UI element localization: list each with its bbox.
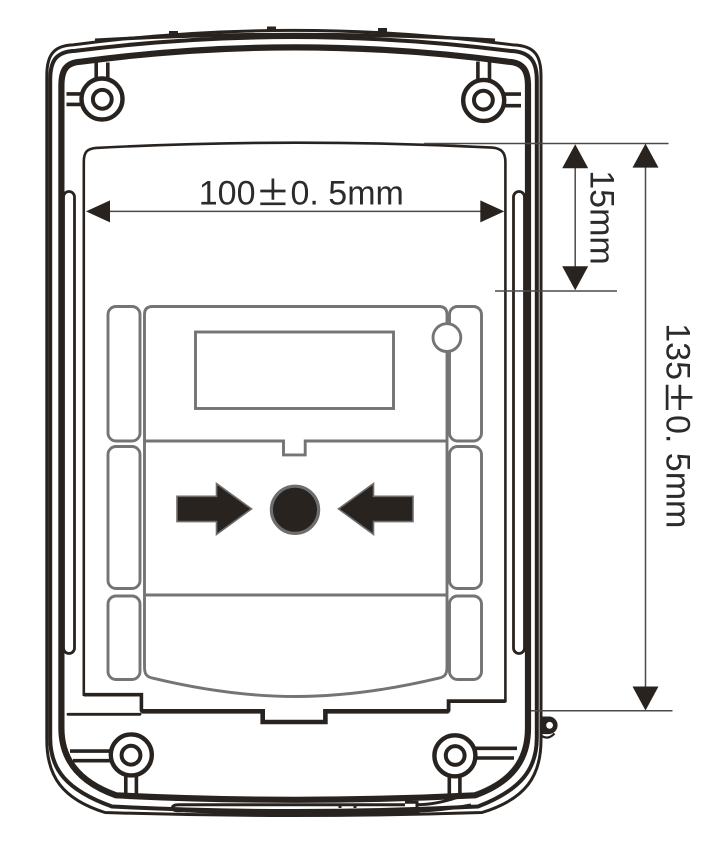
svg-text:0. 5mm: 0. 5mm — [659, 415, 697, 528]
svg-text:100: 100 — [199, 174, 256, 212]
svg-text:15mm: 15mm — [583, 170, 621, 264]
svg-text:0. 5mm: 0. 5mm — [291, 174, 404, 212]
svg-text:135: 135 — [659, 323, 697, 380]
